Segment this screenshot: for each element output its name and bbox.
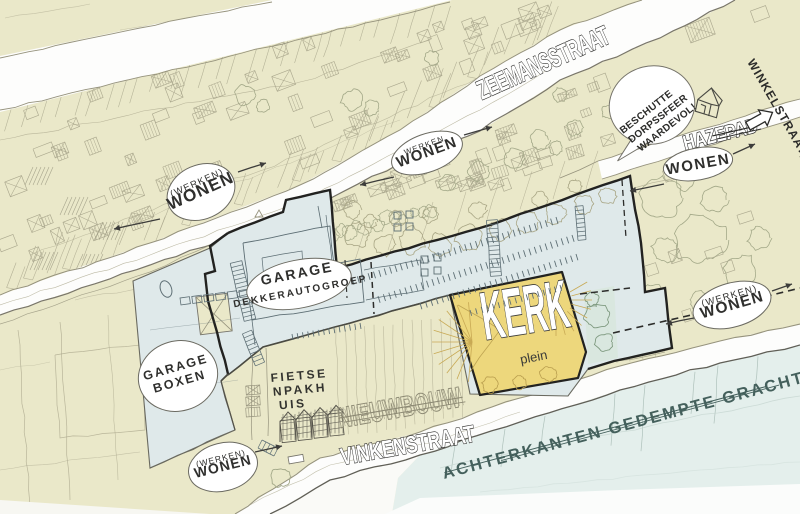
svg-text:UIS: UIS	[278, 396, 307, 412]
svg-text:KERK: KERK	[475, 266, 574, 355]
